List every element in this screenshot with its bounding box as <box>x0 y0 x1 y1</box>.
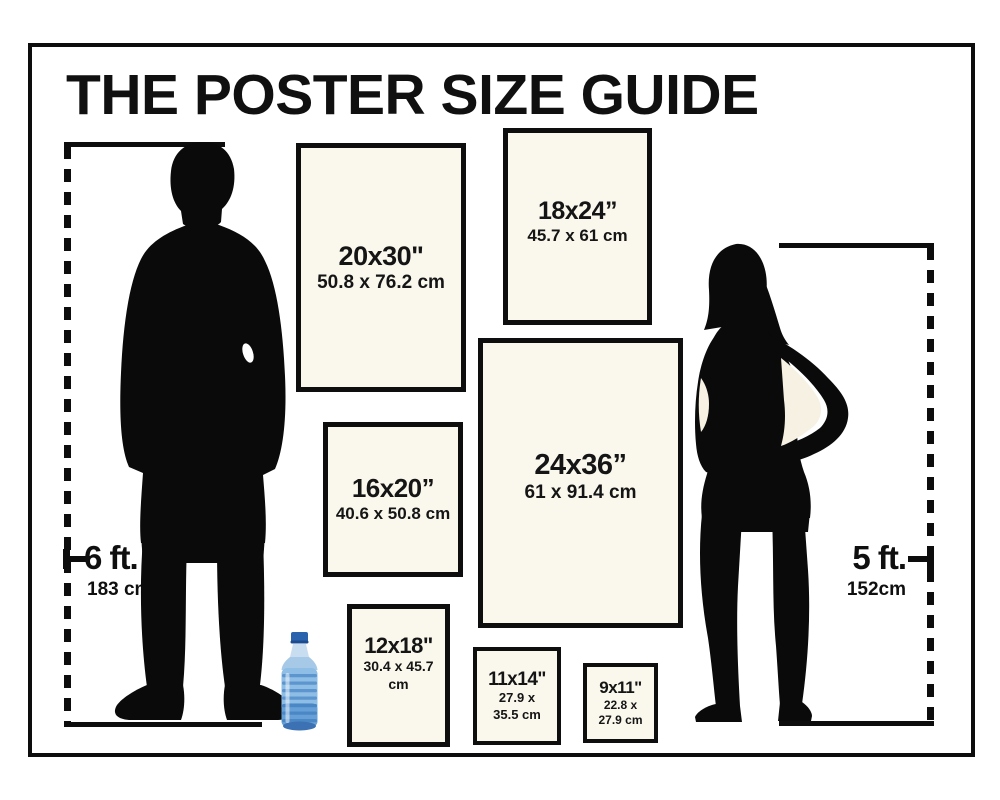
poster-box-18x24: 18x24” 45.7 x 61 cm <box>503 128 652 325</box>
water-bottle-icon <box>277 631 322 734</box>
poster-box-16x20: 16x20” 40.6 x 50.8 cm <box>323 422 463 577</box>
poster-size-label: 9x11" <box>599 678 641 697</box>
poster-box-20x30: 20x30" 50.8 x 76.2 cm <box>296 143 466 392</box>
poster-metric-label: 22.8 x <box>604 698 637 713</box>
poster-metric-label: 45.7 x 61 cm <box>527 225 627 246</box>
poster-metric-label: 35.5 cm <box>493 707 541 723</box>
poster-metric-label: 50.8 x 76.2 cm <box>317 271 445 295</box>
poster-metric-label: 61 x 91.4 cm <box>525 481 637 505</box>
poster-size-guide: THE POSTER SIZE GUIDE 6 ft. 183 cm 5 ft.… <box>0 0 1000 800</box>
poster-metric-label: 27.9 cm <box>598 713 642 728</box>
poster-size-label: 12x18" <box>352 634 445 659</box>
poster-box-24x36: 24x36” 61 x 91.4 cm <box>478 338 683 628</box>
poster-box-12x18: 12x18" 30.4 x 45.7 cm <box>347 604 450 747</box>
page-title: THE POSTER SIZE GUIDE <box>66 67 759 124</box>
poster-size-label: 11x14" <box>488 669 546 690</box>
poster-size-label: 16x20” <box>352 474 434 503</box>
poster-box-9x11: 9x11" 22.8 x 27.9 cm <box>583 663 658 743</box>
poster-box-11x14: 11x14" 27.9 x 35.5 cm <box>473 647 561 745</box>
poster-metric-label: 40.6 x 50.8 cm <box>336 503 450 524</box>
woman-height-tick-cap <box>927 549 934 569</box>
man-height-dashed-line <box>64 146 71 724</box>
poster-size-label: 18x24” <box>527 197 627 225</box>
man-silhouette-icon <box>103 141 305 725</box>
man-height-tick-cap <box>63 549 70 569</box>
poster-metric-label: 27.9 x <box>499 690 535 706</box>
poster-size-label: 24x36” <box>525 449 637 481</box>
poster-metric-label: 30.4 x 45.7 cm <box>352 658 445 693</box>
poster-size-label: 20x30" <box>339 241 424 271</box>
woman-height-dashed-line <box>927 247 934 724</box>
woman-silhouette-icon <box>684 242 860 729</box>
